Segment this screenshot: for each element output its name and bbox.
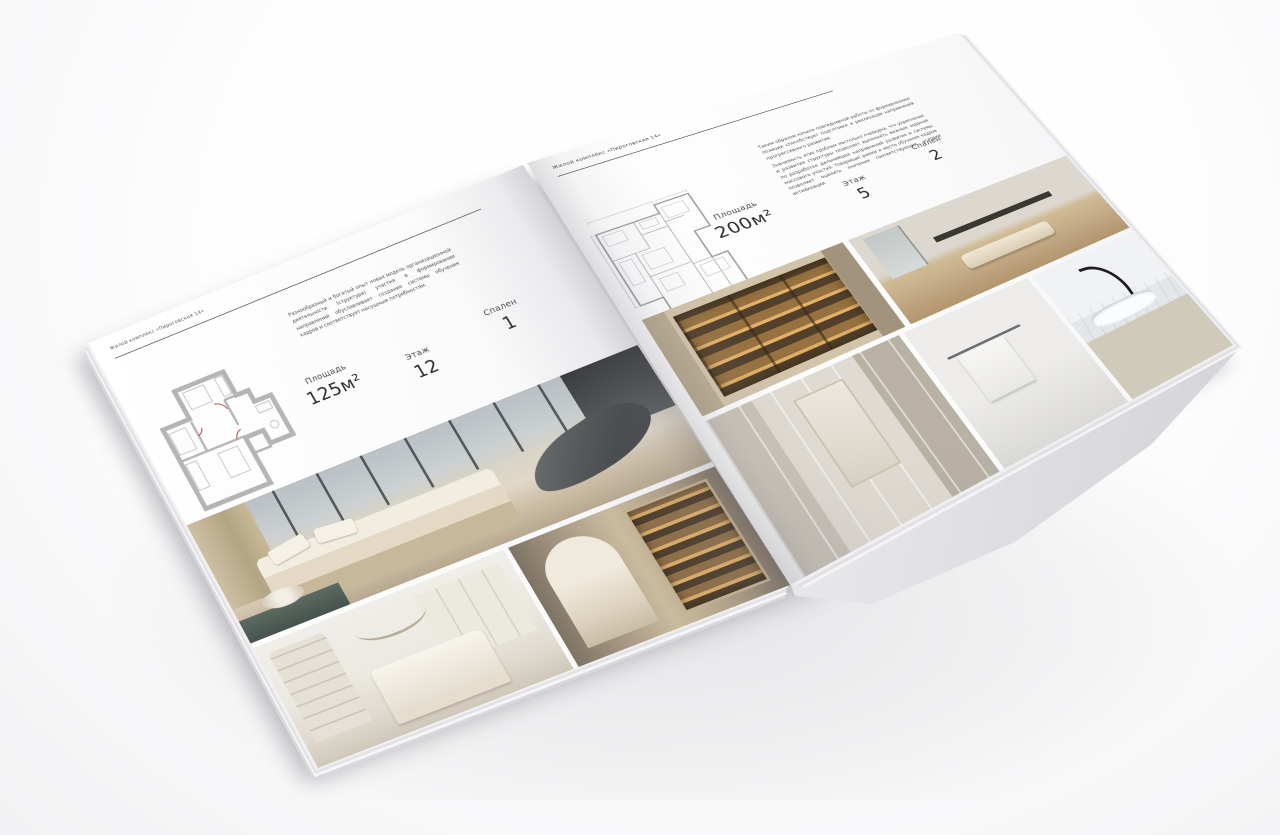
towel-shape: [957, 336, 1036, 402]
page-title: Жилой комплекс «Пироговская 14»: [551, 133, 662, 171]
page-title: Жилой комплекс «Пироговская 14»: [109, 308, 206, 351]
intro-paragraph: Разнообразный и богатый опыт новая модел…: [287, 247, 465, 340]
spec-area: Площадь 125м²: [290, 357, 374, 412]
bench-shape: [959, 220, 1056, 269]
spec-area: Площадь 200м²: [696, 195, 786, 245]
brochure-mockup-scene: Жилой комплекс «Пироговская 14» Таким об…: [0, 0, 1280, 835]
spec-bedrooms: Спален 1: [466, 291, 547, 345]
window-shape: [863, 226, 928, 279]
spec-floor: Этаж 12: [388, 338, 461, 388]
